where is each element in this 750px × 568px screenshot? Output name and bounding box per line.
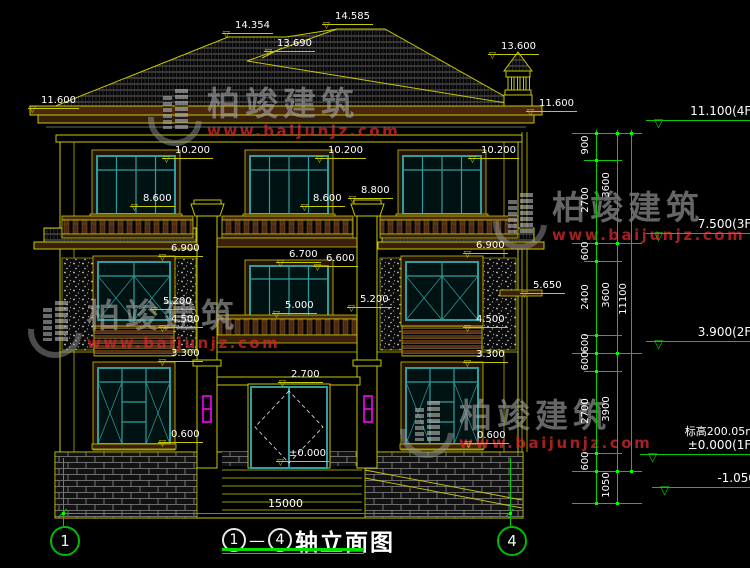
axis-bubble-4: 4 xyxy=(497,526,527,556)
elev-marker-icon: ▽ xyxy=(465,441,472,449)
level-marker-4f: 11.100(4F)▽ xyxy=(646,104,750,121)
overall-dim-line xyxy=(63,513,511,514)
elev-marker-icon: ▽ xyxy=(159,325,166,333)
elev-marker-icon: ▽ xyxy=(265,49,272,57)
elev-label: 4.500▽ xyxy=(158,314,203,328)
dim-value: 2700 xyxy=(581,389,591,433)
dim-value: 3600 xyxy=(602,273,612,317)
level-triangle-icon: ▽ xyxy=(660,485,669,495)
elev-marker-icon: ▽ xyxy=(29,106,36,114)
elev-label: 8.600▽ xyxy=(300,193,345,207)
elev-marker-icon: ▽ xyxy=(323,22,330,30)
title-dash: — xyxy=(249,531,265,550)
grip-dots xyxy=(0,0,3,3)
site-elevation-note: 标高200.05m xyxy=(654,426,750,438)
elev-marker-icon: ▽ xyxy=(273,311,280,319)
elev-label: 11.600▽ xyxy=(28,95,79,109)
balcony-rail-2f xyxy=(210,315,366,343)
dim-value: 900 xyxy=(581,123,591,167)
dim-value: 2700 xyxy=(581,178,591,222)
elev-marker-icon: ▽ xyxy=(277,459,284,467)
elev-marker-icon: ▽ xyxy=(301,204,308,212)
axis-bubble-1: 1 xyxy=(50,526,80,556)
elev-label: ±0.000▽ xyxy=(276,448,329,462)
elev-marker-icon: ▽ xyxy=(489,52,496,60)
elev-marker-icon: ▽ xyxy=(159,440,166,448)
elev-marker-icon: ▽ xyxy=(464,251,471,259)
window-2f-right xyxy=(401,256,483,356)
title-underline xyxy=(222,548,364,551)
elev-label: 5.000▽ xyxy=(272,300,317,314)
elev-label: 6.600▽ xyxy=(313,253,358,267)
elev-marker-icon: ▽ xyxy=(314,264,321,272)
elev-marker-icon: ▽ xyxy=(151,307,158,315)
level-triangle-icon: ▽ xyxy=(654,339,663,349)
elev-label: 5.200▽ xyxy=(150,296,195,310)
elev-label: 14.585▽ xyxy=(322,11,373,25)
elev-label: 5.200▽ xyxy=(347,294,392,308)
elev-label: 6.900▽ xyxy=(463,240,508,254)
elev-label: 10.200▽ xyxy=(315,145,366,159)
elev-marker-icon: ▽ xyxy=(159,254,166,262)
elev-label: 2.700▽ xyxy=(278,369,323,383)
elev-label: 3.300▽ xyxy=(158,348,203,362)
elev-label: 5.650▽ xyxy=(520,280,565,294)
elev-label: 11.600▽ xyxy=(526,98,577,112)
elev-marker-icon: ▽ xyxy=(464,325,471,333)
railing-3f xyxy=(62,216,518,238)
elev-label: 4.500▽ xyxy=(463,314,508,328)
elev-marker-icon: ▽ xyxy=(277,260,284,268)
elev-label: 6.900▽ xyxy=(158,243,203,257)
dim-value: 11100 xyxy=(619,277,629,321)
dim-value: 600 xyxy=(581,229,591,273)
elev-marker-icon: ▽ xyxy=(163,156,170,164)
title-text: 轴立面图 xyxy=(295,523,395,557)
level-marker-1f: 标高200.05m ±0.000(1F)▽ xyxy=(640,426,750,455)
elev-label: 10.200▽ xyxy=(162,145,213,159)
dim-value: 600 xyxy=(581,439,591,483)
dim-chain-line xyxy=(617,130,618,503)
elev-label: 13.600▽ xyxy=(488,41,539,55)
level-triangle-icon: ▽ xyxy=(654,118,663,128)
dim-chain-line xyxy=(631,130,632,471)
level-triangle-icon: ▽ xyxy=(648,452,657,462)
elevation-drawing-canvas: 柏竣建筑 www.baijunjz.com 柏竣建筑 www.baijunjz.… xyxy=(0,0,750,568)
elev-marker-icon: ▽ xyxy=(348,305,355,313)
elev-marker-icon: ▽ xyxy=(527,109,534,117)
title-underline xyxy=(222,553,364,554)
elev-label: 8.800▽ xyxy=(348,185,393,199)
elev-marker-icon: ▽ xyxy=(316,156,323,164)
dim-value: 600 xyxy=(581,339,591,383)
level-triangle-icon: ▽ xyxy=(654,231,663,241)
elev-label: 10.200▽ xyxy=(468,145,519,159)
cornice xyxy=(30,106,542,142)
elev-marker-icon: ▽ xyxy=(279,380,286,388)
dim-chain-line xyxy=(596,130,597,503)
elev-label: 0.600▽ xyxy=(464,430,509,444)
axis-leader xyxy=(510,458,511,526)
elev-label: 14.354▽ xyxy=(222,20,273,34)
level-marker-ground: -1.050▽ xyxy=(652,471,750,488)
overall-dim-value: 15000 xyxy=(268,498,303,510)
dim-value: 3900 xyxy=(602,387,612,431)
drawing-title: 1 — 4 轴立面图 xyxy=(222,523,395,557)
elev-marker-icon: ▽ xyxy=(521,291,528,299)
elev-marker-icon: ▽ xyxy=(131,204,138,212)
elev-marker-icon: ▽ xyxy=(159,359,166,367)
dim-value: 3600 xyxy=(602,163,612,207)
elev-label: 13.690▽ xyxy=(264,38,315,52)
dim-value: 2400 xyxy=(581,275,591,319)
elev-marker-icon: ▽ xyxy=(349,196,356,204)
level-marker-2f: 3.900(2F)▽ xyxy=(646,325,750,342)
elev-label: 3.300▽ xyxy=(463,349,508,363)
elev-label: 8.600▽ xyxy=(130,193,175,207)
level-marker-3f: 7.500(3F)▽ xyxy=(646,217,750,234)
elev-label: 0.600▽ xyxy=(158,429,203,443)
facade-line-art xyxy=(0,0,750,568)
axis-leader xyxy=(63,458,64,526)
elev-marker-icon: ▽ xyxy=(464,360,471,368)
elev-marker-icon: ▽ xyxy=(469,156,476,164)
dim-value: 1050 xyxy=(602,463,612,507)
elev-marker-icon: ▽ xyxy=(223,31,230,39)
